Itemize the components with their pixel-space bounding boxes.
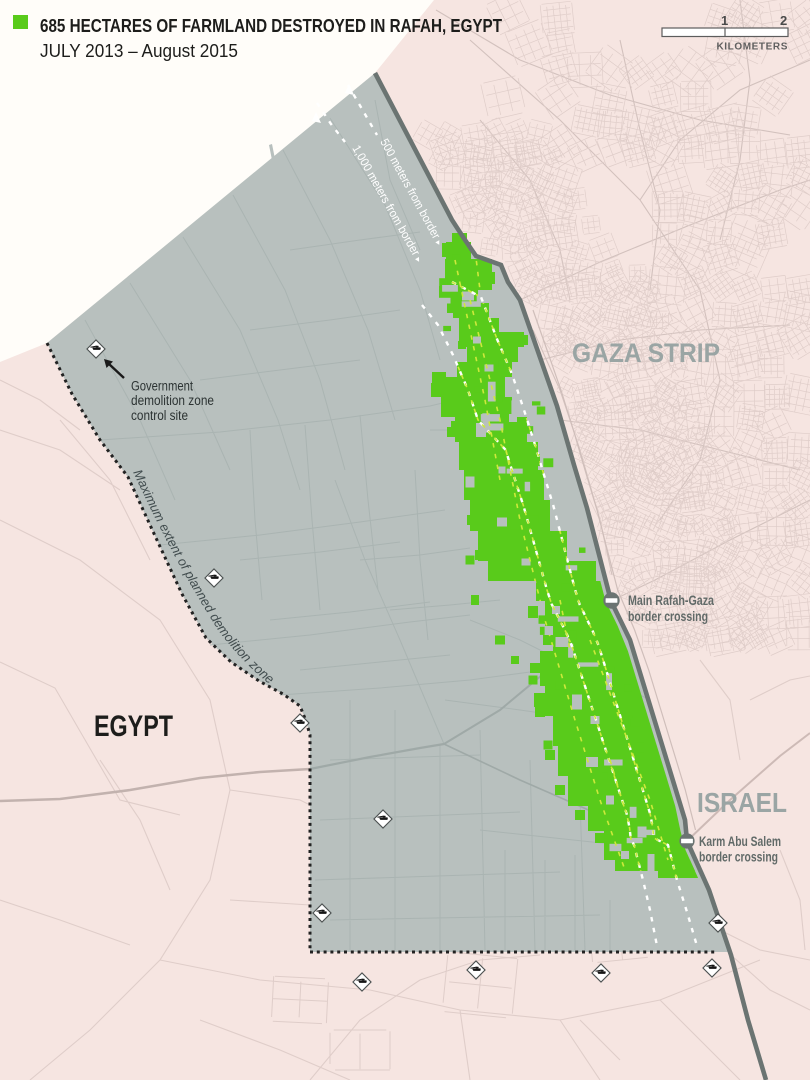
svg-text:685 HECTARES OF FARMLAND DESTR: 685 HECTARES OF FARMLAND DESTROYED IN RA… <box>40 16 502 36</box>
svg-text:KILOMETERS: KILOMETERS <box>716 42 788 53</box>
svg-text:Main Rafah-Gaza: Main Rafah-Gaza <box>628 593 714 608</box>
svg-text:border crossing: border crossing <box>699 850 778 865</box>
svg-text:2: 2 <box>780 13 787 28</box>
svg-text:JULY 2013 – August 2015: JULY 2013 – August 2015 <box>40 41 238 61</box>
svg-text:EGYPT: EGYPT <box>94 710 173 743</box>
svg-text:Karm Abu Salem: Karm Abu Salem <box>699 834 781 849</box>
svg-text:1: 1 <box>721 13 728 28</box>
svg-text:GAZA STRIP: GAZA STRIP <box>572 338 720 368</box>
svg-text:ISRAEL: ISRAEL <box>697 787 787 818</box>
svg-text:control site: control site <box>131 408 188 423</box>
svg-text:demolition zone: demolition zone <box>131 393 214 408</box>
svg-text:Government: Government <box>131 379 193 394</box>
svg-text:border crossing: border crossing <box>628 609 708 624</box>
